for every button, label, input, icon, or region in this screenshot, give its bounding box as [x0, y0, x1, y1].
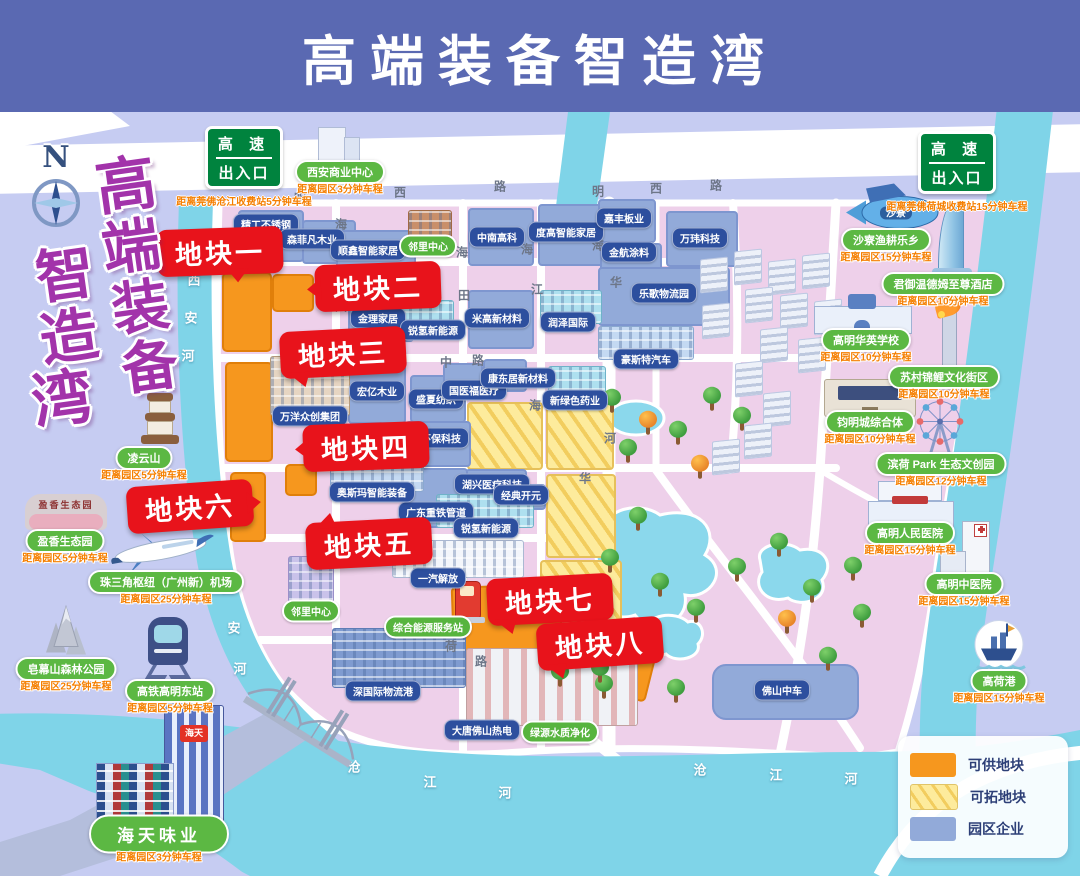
legend-swatch-enterprise — [910, 817, 956, 841]
tree-icon-19 — [843, 557, 863, 581]
plot-callout-3: 地块三 — [279, 326, 407, 380]
enterprise-label-13: 润泽国际 — [540, 312, 596, 333]
road-name-char-12: 江 — [531, 281, 543, 298]
page-title: 高端装备智造湾 — [302, 17, 778, 96]
highway-sign-line1: 高 速 — [929, 137, 985, 164]
decorative-building-10 — [735, 361, 763, 398]
road-name-char-5: 路 — [710, 177, 722, 194]
legend-row-expandable: 可拓地块 — [910, 784, 1056, 810]
river-name-char-7: 江 — [423, 772, 436, 791]
enterprise-label-7: 金航涂料 — [601, 242, 657, 263]
landmark-distance-7: 距离园区15分钟车程 — [840, 249, 931, 264]
tree-icon-2 — [668, 421, 688, 445]
road-name-char-18: 华 — [579, 470, 591, 487]
landmark-distance-12: 距离园区12分钟车程 — [895, 473, 986, 488]
haitian-icon: 海天 — [96, 705, 228, 827]
decorative-building-8 — [760, 327, 788, 364]
enterprise-label-30: 深国际物流港 — [345, 681, 421, 702]
enterprise-label-21: 新绿色药业 — [542, 390, 608, 411]
road-name-char-2: 路 — [494, 178, 506, 195]
tree-icon-15 — [777, 610, 797, 634]
highway-sign-line2: 出入口 — [216, 159, 272, 183]
tree-icon-14 — [802, 579, 822, 603]
road-name-char-3: 明 — [592, 183, 604, 200]
highway-sign-board: 高 速 出入口 — [918, 131, 996, 194]
enterprise-label-20: 康东居新材料 — [480, 368, 556, 389]
tree-icon-10 — [650, 573, 670, 597]
plot-callout-4: 地块四 — [302, 421, 430, 472]
enterprise-label-6: 嘉丰板业 — [596, 208, 652, 229]
river-name-char-11: 河 — [844, 769, 857, 788]
enterprise-label-28: 邻里中心 — [282, 600, 340, 623]
enterprise-label-3: 邻里中心 — [399, 235, 457, 258]
park-map: N 高 速 出入口 距离莞佛沧江收费站5分钟车程 高 速 出入口 距离莞佛荷城收… — [0, 0, 1080, 876]
decorative-building-0 — [700, 257, 728, 294]
decorative-building-1 — [734, 249, 762, 286]
river-name-char-10: 江 — [769, 765, 782, 784]
vertical-title-char-3: 备 — [118, 335, 181, 398]
legend-swatch-available — [910, 753, 956, 777]
enterprise-label-14: 豪斯特汽车 — [613, 349, 679, 370]
mountain-icon — [44, 605, 88, 664]
river-name-char-4: 安 — [227, 618, 240, 637]
river-name-char-9: 沧 — [693, 760, 706, 779]
river-name-char-2: 河 — [181, 346, 194, 365]
tree-icon-1 — [638, 411, 658, 435]
poster-canvas: N 高 速 出入口 距离莞佛沧江收费站5分钟车程 高 速 出入口 距离莞佛荷城收… — [0, 0, 1080, 876]
tree-icon-13 — [769, 533, 789, 557]
landmark-distance-9: 距离园区10分钟车程 — [820, 349, 911, 364]
landmark-distance-5: 距离园区5分钟车程 — [127, 700, 213, 715]
plot-callout-1: 地块一 — [156, 226, 284, 277]
road-name-char-4: 西 — [650, 180, 662, 197]
landmark-distance-14: 距离园区15分钟车程 — [918, 593, 1009, 608]
legend-row-enterprise: 园区企业 — [910, 817, 1056, 841]
enterprise-label-9: 乐歌物流园 — [631, 283, 697, 304]
enterprise-label-27: 一汽解放 — [410, 568, 466, 589]
vertical-title-char-1: 端 — [98, 214, 164, 280]
tree-icon-4 — [702, 387, 722, 411]
landmark-distance-6: 距离园区3分钟车程 — [116, 849, 202, 864]
tree-icon-21 — [818, 647, 838, 671]
road-name-char-13: 华 — [610, 274, 622, 291]
compass-rose-icon — [28, 175, 84, 231]
north-compass: N — [28, 140, 84, 236]
road-name-char-7: 海 — [456, 244, 468, 261]
tree-icon-18 — [666, 679, 686, 703]
highway-sign-line2: 出入口 — [929, 164, 985, 188]
map-legend: 可供地块 可拓地块 园区企业 — [898, 736, 1068, 858]
vertical-title-char-4: 智 — [32, 242, 98, 308]
highway-sign-distance: 距离莞佛沧江收费站5分钟车程 — [124, 193, 364, 208]
tree-icon-8 — [600, 549, 620, 573]
plot-callout-5: 地块六 — [126, 479, 255, 535]
landmark-distance-13: 距离园区15分钟车程 — [864, 542, 955, 557]
road-name-char-19: 荷 — [445, 638, 457, 655]
enterprise-label-4: 中南高科 — [469, 227, 525, 248]
river-name-char-1: 安 — [184, 308, 197, 327]
highway-exit-sign-east: 高 速 出入口 距离莞佛荷城收费站15分钟车程 — [837, 131, 1077, 213]
legend-row-available: 可供地块 — [910, 753, 1056, 777]
enterprise-label-25: 奥斯玛智能装备 — [329, 482, 415, 503]
decorative-building-4 — [745, 287, 773, 324]
train-icon — [145, 617, 191, 679]
landmark-distance-4: 距离园区25分钟车程 — [20, 678, 111, 693]
highway-sign-line1: 高 速 — [216, 132, 272, 159]
legend-label: 可拓地块 — [970, 787, 1026, 807]
landmark-distance-11: 距离园区10分钟车程 — [824, 431, 915, 446]
tree-icon-12 — [727, 558, 747, 582]
highway-sign-board: 高 速 出入口 — [205, 126, 283, 189]
enterprise-label-8: 万玮科技 — [672, 228, 728, 249]
road-name-char-16: 海 — [529, 397, 541, 414]
river-name-char-8: 河 — [498, 783, 511, 802]
landmark-distance-2: 距离园区5分钟车程 — [22, 550, 108, 565]
legend-label: 可供地块 — [968, 755, 1024, 775]
vertical-title-char-2: 装 — [108, 275, 172, 339]
tree-icon-5 — [732, 407, 752, 431]
decorative-building-3 — [802, 253, 830, 290]
enterprise-label-29: 综合能源服务站 — [384, 616, 472, 639]
decorative-building-5 — [780, 293, 808, 330]
road-name-char-11: 田 — [458, 287, 470, 304]
enterprise-label-5: 度高智能家居 — [528, 222, 604, 243]
legend-label: 园区企业 — [968, 819, 1024, 839]
plot-callout-2: 地块二 — [314, 261, 442, 312]
plot-callout-8: 地块八 — [536, 616, 665, 672]
title-bar: 高端装备智造湾 — [0, 0, 1080, 112]
road-name-char-20: 路 — [475, 653, 487, 670]
plot-callout-6: 地块五 — [305, 517, 433, 571]
landmark-distance-10: 距离园区10分钟车程 — [898, 386, 989, 401]
tree-icon-11 — [686, 599, 706, 623]
enterprise-label-2: 顺鑫智能家居 — [330, 240, 406, 261]
plot-callout-7: 地块七 — [486, 573, 614, 627]
mound-icon: 盈香生态园 — [25, 494, 107, 530]
decorative-building-13 — [712, 439, 740, 476]
pagoda-icon — [141, 393, 179, 451]
highway-exit-sign-west: 高 速 出入口 距离莞佛沧江收费站5分钟车程 — [124, 126, 364, 208]
road-name-char-15: 路 — [472, 352, 484, 369]
enterprise-label-12: 米高新材料 — [464, 308, 530, 329]
road-name-char-14: 中 — [440, 354, 452, 371]
landmark-distance-8: 距离园区10分钟车程 — [897, 293, 988, 308]
enterprise-label-11: 锐氢新能源 — [400, 320, 466, 341]
vertical-title-char-6: 湾 — [28, 366, 96, 434]
vertical-title-char-5: 造 — [36, 304, 102, 370]
enterprise-label-23: 经典开元 — [493, 485, 549, 506]
road-name-char-1: 西 — [394, 184, 406, 201]
enterprise-label-31: 大唐佛山热电 — [444, 720, 520, 741]
highway-sign-distance: 距离莞佛荷城收费站15分钟车程 — [837, 198, 1077, 213]
tree-icon-6 — [690, 455, 710, 479]
enterprise-label-16: 宏亿木业 — [349, 381, 405, 402]
north-label: N — [28, 140, 84, 175]
tree-icon-20 — [852, 604, 872, 628]
landmark-distance-15: 距离园区15分钟车程 — [953, 690, 1044, 705]
landmark-distance-3: 距离园区25分钟车程 — [120, 591, 211, 606]
expandable-plot-2 — [546, 474, 616, 558]
landmark-distance-1: 距离园区5分钟车程 — [101, 467, 187, 482]
legend-swatch-expandable — [910, 784, 958, 810]
tree-icon-3 — [618, 439, 638, 463]
enterprise-label-32: 绿源水质净化 — [521, 721, 599, 744]
decorative-building-11 — [763, 391, 791, 428]
enterprise-label-26: 锐氢新能源 — [453, 518, 519, 539]
enterprise-label-33: 佛山中车 — [754, 680, 810, 701]
available-plot-2 — [225, 362, 273, 462]
tree-icon-7 — [628, 507, 648, 531]
road-name-char-17: 河 — [604, 430, 616, 447]
hotel-tower-icon — [930, 202, 974, 278]
decorative-building-7 — [702, 303, 730, 340]
